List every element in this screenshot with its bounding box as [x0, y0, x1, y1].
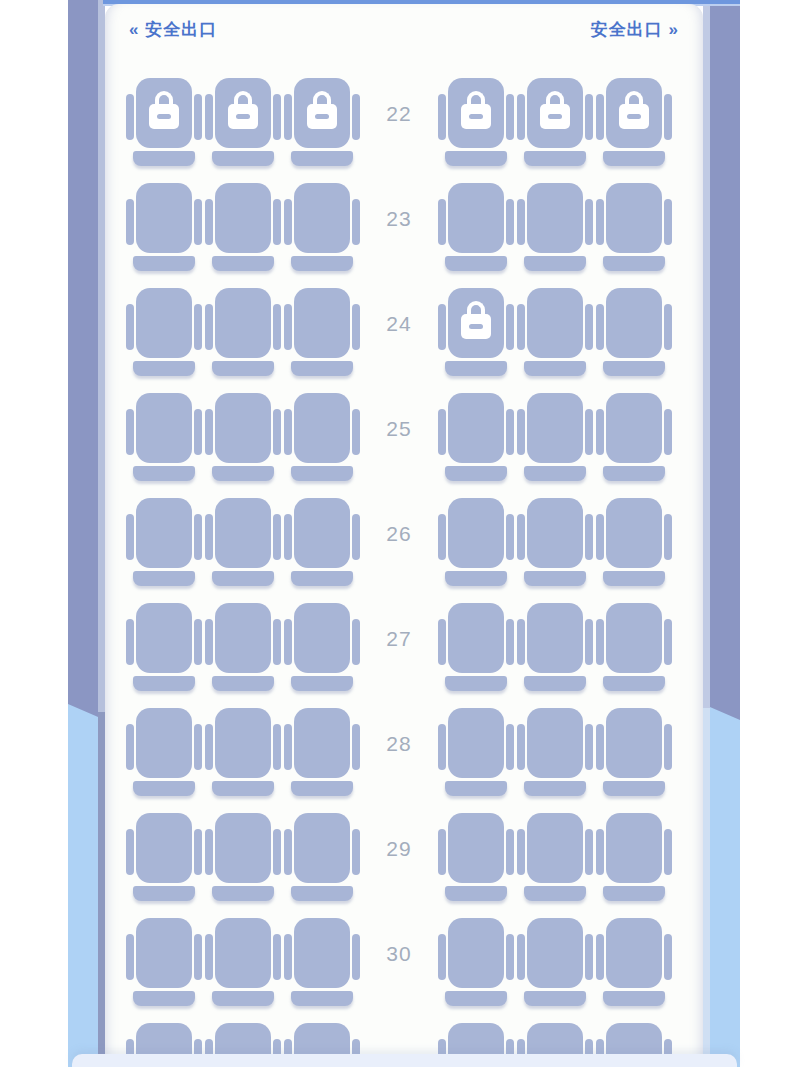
seat-available[interactable]: [284, 288, 360, 376]
seat-cushion: [133, 256, 195, 271]
row-number: 29: [386, 837, 411, 861]
seat-back: [215, 183, 271, 253]
armrest: [284, 409, 292, 455]
seat-available[interactable]: [284, 813, 360, 901]
armrest: [596, 934, 604, 980]
armrest: [352, 829, 360, 875]
armrest: [205, 724, 213, 770]
armrest: [194, 829, 202, 875]
armrest: [517, 619, 525, 665]
seat-available[interactable]: [596, 393, 672, 481]
armrest: [438, 619, 446, 665]
seat-available[interactable]: [205, 603, 281, 691]
seat-available[interactable]: [596, 183, 672, 271]
seat-cushion: [133, 676, 195, 691]
armrest: [205, 514, 213, 560]
seat-available[interactable]: [517, 603, 593, 691]
seat-available[interactable]: [438, 183, 514, 271]
seat-back: [136, 183, 192, 253]
seat-cushion: [524, 886, 586, 901]
seat-row-26: 26: [105, 498, 703, 586]
aisle: 27: [360, 603, 438, 675]
seat-row-22: 22: [105, 78, 703, 166]
seat-row-28: 28: [105, 708, 703, 796]
seat-cushion: [524, 571, 586, 586]
fuselage-wall-right-edge: [703, 0, 710, 1067]
lock-icon: [619, 91, 649, 133]
armrest: [205, 409, 213, 455]
seat-back: [527, 918, 583, 988]
armrest: [205, 94, 213, 140]
seat-available[interactable]: [205, 498, 281, 586]
seat-back: [215, 498, 271, 568]
seat-available[interactable]: [517, 708, 593, 796]
armrest: [438, 94, 446, 140]
armrest: [273, 409, 281, 455]
armrest: [596, 514, 604, 560]
armrest: [284, 514, 292, 560]
seat-cushion: [291, 676, 353, 691]
seat-available[interactable]: [284, 918, 360, 1006]
aisle: 24: [360, 288, 438, 360]
armrest: [517, 199, 525, 245]
seat-cushion: [524, 991, 586, 1006]
safety-exit-left-label: « 安全出口: [129, 18, 217, 41]
seat-cushion: [445, 151, 507, 166]
aisle: 26: [360, 498, 438, 570]
seat-block-left: [126, 78, 360, 166]
armrest: [273, 514, 281, 560]
armrest: [126, 304, 134, 350]
armrest: [352, 724, 360, 770]
seat-available[interactable]: [438, 393, 514, 481]
seat-cushion: [291, 781, 353, 796]
seat-cushion: [212, 256, 274, 271]
armrest: [352, 619, 360, 665]
armrest: [585, 724, 593, 770]
armrest: [126, 934, 134, 980]
seat-available[interactable]: [205, 918, 281, 1006]
seat-cushion: [212, 151, 274, 166]
row-number: 27: [386, 627, 411, 651]
seat-cushion: [212, 886, 274, 901]
seat-cushion: [603, 991, 665, 1006]
armrest: [194, 304, 202, 350]
seat-back: [294, 918, 350, 988]
row-number: 30: [386, 942, 411, 966]
row-number: 23: [386, 207, 411, 231]
seat-available[interactable]: [126, 393, 202, 481]
seat-cushion: [524, 151, 586, 166]
armrest: [585, 409, 593, 455]
lock-icon: [540, 91, 570, 133]
seat-back: [136, 288, 192, 358]
seat-locked: [438, 78, 514, 166]
armrest: [596, 304, 604, 350]
seat-cushion: [524, 256, 586, 271]
armrest: [664, 934, 672, 980]
seat-available[interactable]: [284, 393, 360, 481]
seat-locked: [284, 78, 360, 166]
row-number: 22: [386, 102, 411, 126]
seat-cushion: [291, 991, 353, 1006]
armrest: [596, 409, 604, 455]
seat-cushion: [445, 256, 507, 271]
seat-back: [136, 603, 192, 673]
row-number: 28: [386, 732, 411, 756]
armrest: [585, 94, 593, 140]
row-number: 25: [386, 417, 411, 441]
seat-back: [527, 183, 583, 253]
armrest: [438, 409, 446, 455]
seat-back: [606, 288, 662, 358]
seat-cushion: [445, 466, 507, 481]
seat-cushion: [603, 256, 665, 271]
seat-locked: [596, 78, 672, 166]
seat-cushion: [212, 991, 274, 1006]
armrest: [506, 724, 514, 770]
seat-block-right: [438, 603, 672, 691]
seat-back: [527, 603, 583, 673]
seat-back: [527, 78, 583, 148]
seat-available[interactable]: [205, 288, 281, 376]
armrest: [664, 94, 672, 140]
armrest: [585, 829, 593, 875]
seat-block-right: [438, 813, 672, 901]
armrest: [126, 514, 134, 560]
armrest: [438, 304, 446, 350]
seat-back: [448, 78, 504, 148]
seat-back: [294, 708, 350, 778]
seat-back: [294, 393, 350, 463]
armrest: [585, 619, 593, 665]
seat-back: [136, 393, 192, 463]
armrest: [352, 94, 360, 140]
aisle: 22: [360, 78, 438, 150]
armrest: [205, 304, 213, 350]
armrest: [126, 619, 134, 665]
armrest: [284, 724, 292, 770]
lock-icon: [228, 91, 258, 133]
armrest: [585, 304, 593, 350]
seat-back: [527, 813, 583, 883]
seat-cushion: [133, 151, 195, 166]
armrest: [517, 409, 525, 455]
armrest: [664, 199, 672, 245]
seat-cushion: [603, 151, 665, 166]
seat-available[interactable]: [126, 708, 202, 796]
armrest: [284, 94, 292, 140]
lock-icon: [461, 91, 491, 133]
seat-back: [136, 813, 192, 883]
seat-block-left: [126, 393, 360, 481]
seat-back: [215, 603, 271, 673]
lock-icon: [461, 301, 491, 343]
armrest: [273, 934, 281, 980]
seat-cushion: [291, 466, 353, 481]
armrest: [352, 514, 360, 560]
seat-back: [448, 393, 504, 463]
seat-block-right: [438, 393, 672, 481]
armrest: [506, 829, 514, 875]
aisle: 25: [360, 393, 438, 465]
aircraft-fuselage: « 安全出口 安全出口 » 222324252627282930: [68, 0, 740, 1067]
seat-locked: [517, 78, 593, 166]
seat-block-left: [126, 813, 360, 901]
armrest: [273, 199, 281, 245]
seat-back: [527, 288, 583, 358]
seat-available[interactable]: [438, 813, 514, 901]
armrest: [205, 199, 213, 245]
armrest: [126, 409, 134, 455]
seat-selection-page: « 安全出口 安全出口 » 222324252627282930: [0, 0, 800, 1067]
seat-back: [448, 708, 504, 778]
seat-back: [448, 603, 504, 673]
seat-block-right: [438, 288, 672, 376]
seat-cushion: [445, 676, 507, 691]
seat-back: [215, 288, 271, 358]
armrest: [596, 199, 604, 245]
seat-available[interactable]: [284, 603, 360, 691]
armrest: [352, 934, 360, 980]
bottom-sheet-edge: [72, 1054, 737, 1067]
seat-cushion: [291, 361, 353, 376]
seat-back: [527, 498, 583, 568]
seat-available[interactable]: [438, 708, 514, 796]
armrest: [506, 934, 514, 980]
seat-row-25: 25: [105, 393, 703, 481]
seat-cushion: [212, 466, 274, 481]
seat-back: [606, 498, 662, 568]
seat-back: [606, 708, 662, 778]
seat-available[interactable]: [517, 288, 593, 376]
armrest: [438, 934, 446, 980]
armrest: [284, 199, 292, 245]
seat-cushion: [445, 361, 507, 376]
row-number: 24: [386, 312, 411, 336]
seat-back: [448, 918, 504, 988]
seat-cushion: [133, 466, 195, 481]
armrest: [664, 409, 672, 455]
armrest: [194, 199, 202, 245]
seat-available[interactable]: [205, 813, 281, 901]
armrest: [438, 724, 446, 770]
armrest: [273, 304, 281, 350]
armrest: [664, 724, 672, 770]
seat-block-left: [126, 183, 360, 271]
seat-available[interactable]: [438, 918, 514, 1006]
seat-available[interactable]: [126, 183, 202, 271]
seat-available[interactable]: [438, 603, 514, 691]
seat-available[interactable]: [205, 393, 281, 481]
seat-cushion: [291, 151, 353, 166]
seat-block-left: [126, 603, 360, 691]
armrest: [506, 619, 514, 665]
armrest: [506, 409, 514, 455]
seat-available[interactable]: [596, 918, 672, 1006]
seat-locked: [126, 78, 202, 166]
armrest: [506, 304, 514, 350]
seat-available[interactable]: [517, 393, 593, 481]
seat-cushion: [524, 676, 586, 691]
seat-available[interactable]: [126, 288, 202, 376]
seat-back: [294, 78, 350, 148]
seat-available[interactable]: [517, 918, 593, 1006]
armrest: [664, 619, 672, 665]
seat-back: [215, 813, 271, 883]
seat-available[interactable]: [596, 708, 672, 796]
armrest: [596, 94, 604, 140]
armrest: [194, 724, 202, 770]
armrest: [126, 199, 134, 245]
seat-back: [606, 918, 662, 988]
seat-cushion: [445, 781, 507, 796]
seat-block-right: [438, 78, 672, 166]
armrest: [205, 619, 213, 665]
seat-available[interactable]: [126, 813, 202, 901]
seat-cushion: [445, 991, 507, 1006]
seat-back: [448, 498, 504, 568]
armrest: [194, 514, 202, 560]
seat-back: [136, 78, 192, 148]
seat-back: [448, 183, 504, 253]
seat-available[interactable]: [517, 183, 593, 271]
armrest: [352, 409, 360, 455]
seat-available[interactable]: [205, 708, 281, 796]
armrest: [585, 934, 593, 980]
seat-back: [215, 393, 271, 463]
seat-cushion: [445, 571, 507, 586]
armrest: [517, 304, 525, 350]
aisle: 28: [360, 708, 438, 780]
seat-locked: [438, 288, 514, 376]
seat-available[interactable]: [205, 183, 281, 271]
armrest: [517, 94, 525, 140]
fuselage-wall-right: [703, 0, 740, 1067]
armrest: [273, 619, 281, 665]
seat-back: [215, 708, 271, 778]
armrest: [585, 199, 593, 245]
armrest: [273, 724, 281, 770]
armrest: [438, 514, 446, 560]
armrest: [284, 619, 292, 665]
seat-row-23: 23: [105, 183, 703, 271]
lock-icon: [149, 91, 179, 133]
armrest: [126, 829, 134, 875]
lock-icon: [307, 91, 337, 133]
seat-back: [448, 288, 504, 358]
seat-cushion: [603, 466, 665, 481]
seat-back: [294, 813, 350, 883]
seat-cushion: [603, 676, 665, 691]
armrest: [506, 514, 514, 560]
fuselage-wall-left: [68, 0, 105, 1067]
seat-row-27: 27: [105, 603, 703, 691]
seat-available[interactable]: [438, 498, 514, 586]
seat-row-30: 30: [105, 918, 703, 1006]
armrest: [517, 514, 525, 560]
seat-available[interactable]: [284, 183, 360, 271]
seat-cushion: [133, 991, 195, 1006]
seat-cushion: [603, 361, 665, 376]
seat-back: [294, 183, 350, 253]
aisle: 29: [360, 813, 438, 885]
seat-available[interactable]: [284, 708, 360, 796]
seat-back: [215, 918, 271, 988]
seat-cushion: [524, 361, 586, 376]
seat-available[interactable]: [596, 813, 672, 901]
seat-back: [606, 813, 662, 883]
armrest: [506, 199, 514, 245]
seat-block-left: [126, 708, 360, 796]
seat-back: [606, 603, 662, 673]
seat-block-right: [438, 918, 672, 1006]
armrest: [664, 829, 672, 875]
seat-back: [606, 393, 662, 463]
row-number: 26: [386, 522, 411, 546]
seat-available[interactable]: [596, 498, 672, 586]
seat-available[interactable]: [596, 288, 672, 376]
cabin-seat-map: « 安全出口 安全出口 » 222324252627282930: [105, 4, 703, 1067]
seat-cushion: [603, 886, 665, 901]
armrest: [506, 94, 514, 140]
seat-available[interactable]: [284, 498, 360, 586]
fuselage-wall-left-edge: [98, 0, 105, 1067]
armrest: [126, 94, 134, 140]
seat-available[interactable]: [517, 498, 593, 586]
seat-locked: [205, 78, 281, 166]
seat-cushion: [212, 571, 274, 586]
seat-cushion: [291, 571, 353, 586]
armrest: [517, 934, 525, 980]
seat-cushion: [524, 466, 586, 481]
armrest: [194, 619, 202, 665]
seat-available[interactable]: [517, 813, 593, 901]
seat-cushion: [133, 886, 195, 901]
armrest: [664, 514, 672, 560]
armrest: [596, 724, 604, 770]
seat-available[interactable]: [126, 498, 202, 586]
seat-cushion: [212, 781, 274, 796]
armrest: [352, 304, 360, 350]
armrest: [438, 199, 446, 245]
safety-exit-header: « 安全出口 安全出口 »: [129, 18, 679, 41]
seat-cushion: [291, 256, 353, 271]
seat-back: [606, 78, 662, 148]
seat-row-29: 29: [105, 813, 703, 901]
seat-back: [294, 288, 350, 358]
armrest: [517, 724, 525, 770]
seat-block-right: [438, 498, 672, 586]
seat-back: [136, 708, 192, 778]
seat-row-24: 24: [105, 288, 703, 376]
armrest: [352, 199, 360, 245]
seat-cushion: [212, 361, 274, 376]
seat-available[interactable]: [126, 918, 202, 1006]
seat-cushion: [524, 781, 586, 796]
armrest: [194, 934, 202, 980]
seat-back: [136, 498, 192, 568]
armrest: [126, 724, 134, 770]
safety-exit-right-label: 安全出口 »: [591, 18, 679, 41]
armrest: [194, 94, 202, 140]
armrest: [664, 304, 672, 350]
armrest: [205, 934, 213, 980]
seat-available[interactable]: [596, 603, 672, 691]
armrest: [438, 829, 446, 875]
seat-available[interactable]: [126, 603, 202, 691]
seat-cushion: [603, 781, 665, 796]
